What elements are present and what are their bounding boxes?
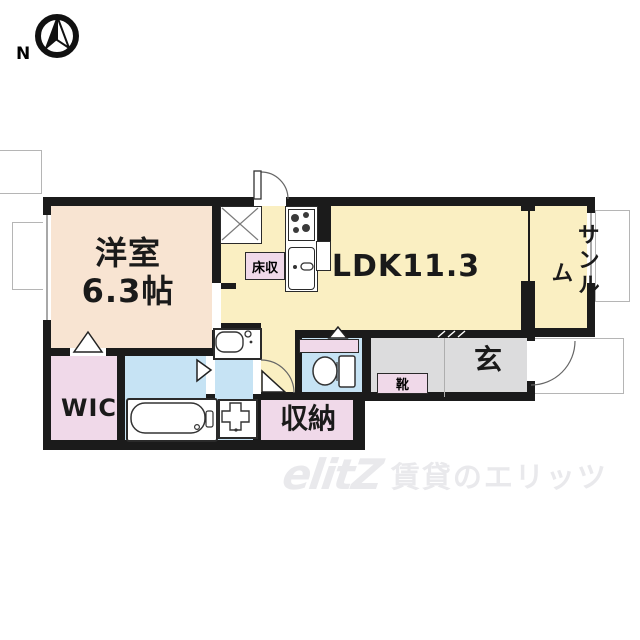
- kitchen-faucet-icon: [293, 263, 313, 270]
- western-room-name: 洋室: [48, 234, 208, 272]
- washbasin-bowl-icon: [216, 331, 252, 352]
- watermark-text: 賃貸のエリッツ: [391, 454, 608, 496]
- sunroom-label: サンルーム: [546, 212, 599, 334]
- bathtub-icon: [131, 403, 213, 433]
- stove-burners-icon: [291, 212, 310, 233]
- wic-label: WIC: [56, 394, 122, 423]
- entrance-label: 玄: [470, 343, 506, 377]
- floor-plan: N 床収: [0, 0, 640, 640]
- back-door-arc: [261, 172, 288, 199]
- western-room-size: 6.3帖: [48, 272, 208, 310]
- washer-cross-icon: [222, 403, 249, 432]
- western-room-label: 洋室 6.3帖: [48, 234, 208, 311]
- compass-north-label: N: [16, 44, 30, 64]
- front-door-arc: [531, 341, 575, 385]
- toilet-icon: [313, 356, 355, 387]
- storage-label: 収納: [258, 402, 358, 436]
- wic-door-triangle: [74, 332, 102, 352]
- entrance-threshold-hatch: [438, 331, 465, 337]
- watermark-logo: elitZ: [280, 450, 385, 499]
- compass-icon: [38, 16, 76, 55]
- plan-symbols: [0, 0, 640, 640]
- toilet-door-triangle: [329, 327, 347, 338]
- ldk-label: LDK11.3: [320, 249, 492, 285]
- watermark: elitZ 賃貸のエリッツ: [283, 450, 608, 499]
- closet-x-lines: [222, 208, 258, 240]
- washroom-door-leaf: [262, 371, 285, 392]
- back-door-leaf: [254, 171, 261, 199]
- bath-door-triangle: [197, 360, 211, 381]
